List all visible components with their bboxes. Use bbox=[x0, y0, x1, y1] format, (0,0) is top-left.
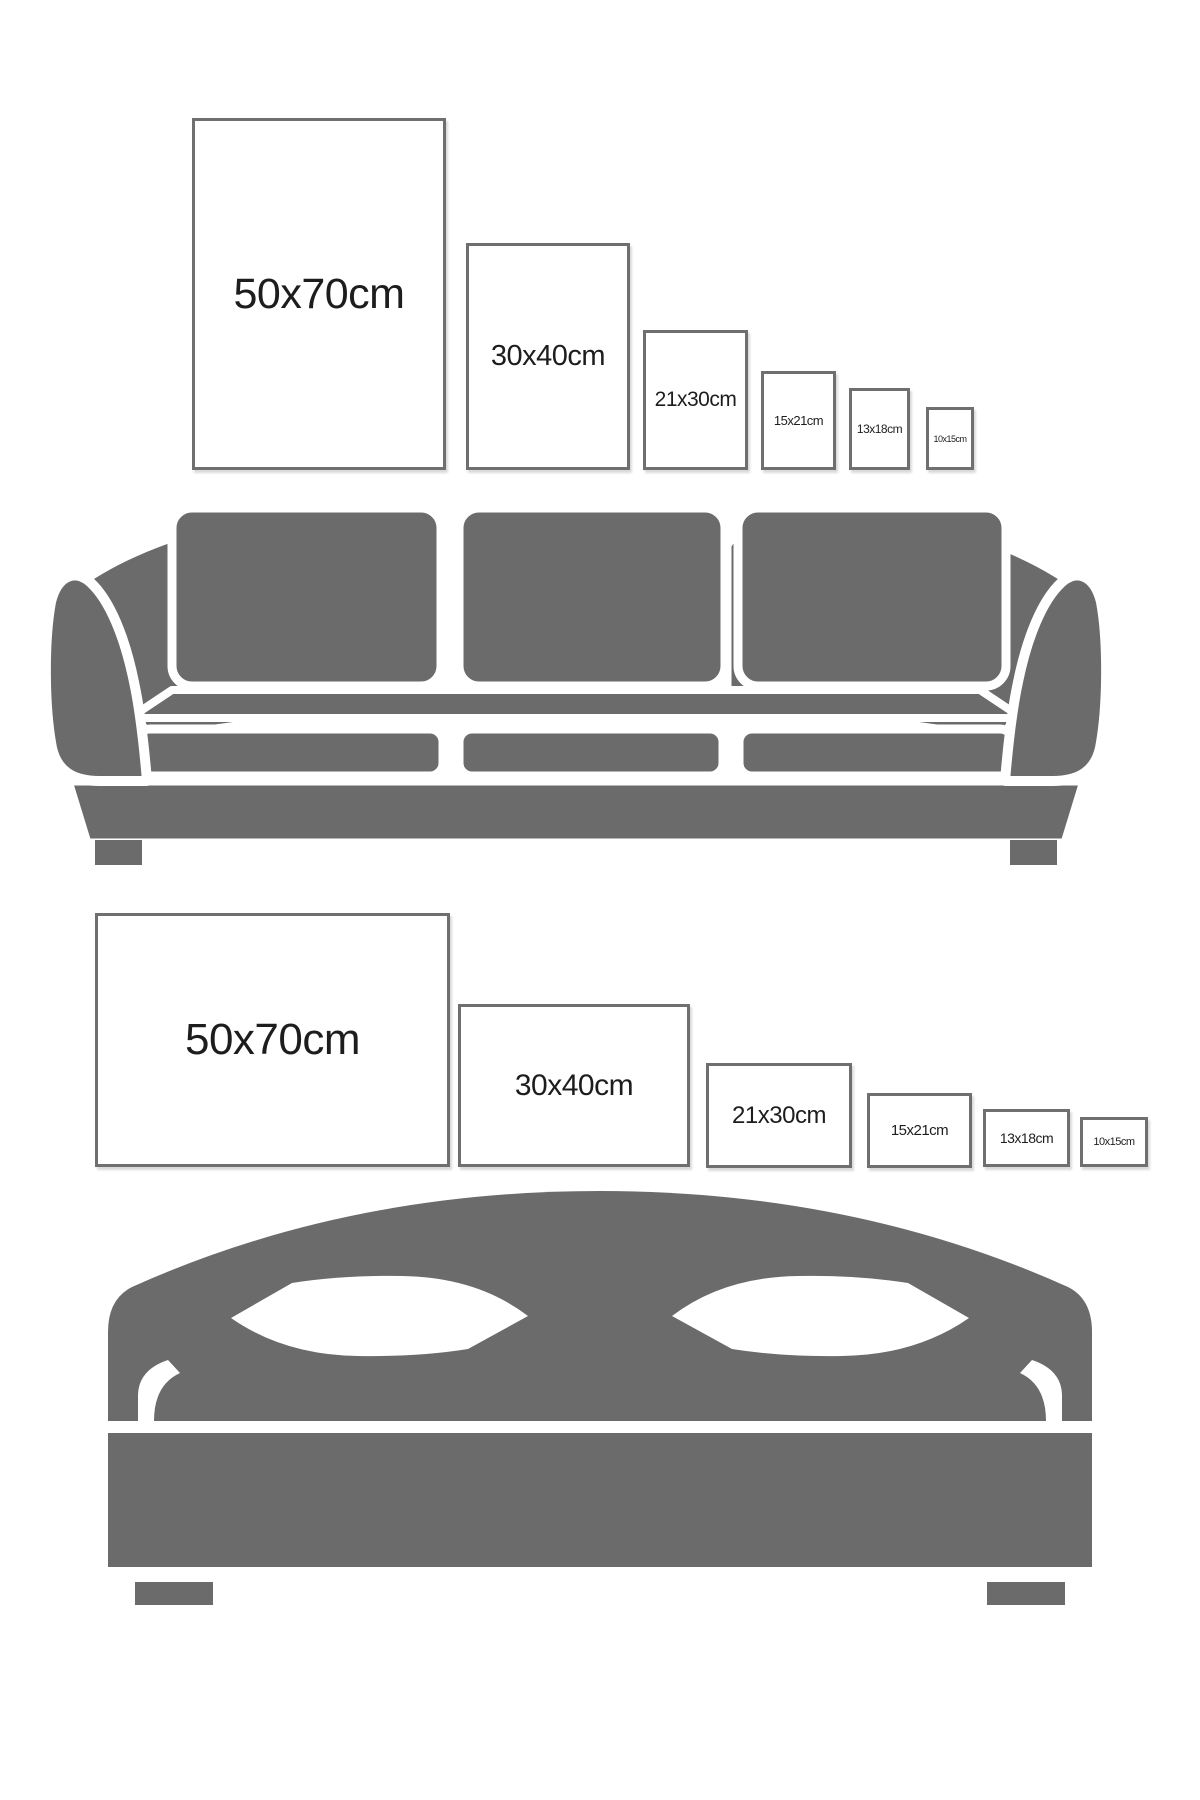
size-frame-bed-10x15cm: 10x15cm bbox=[1080, 1117, 1148, 1167]
size-frame-label: 13x18cm bbox=[1000, 1130, 1053, 1146]
sofa-seat-cushion bbox=[137, 729, 443, 776]
bed-leg-left bbox=[135, 1582, 213, 1605]
sofa-seat-cushion bbox=[739, 729, 1013, 776]
sofa-base bbox=[68, 781, 1084, 843]
bed-icon bbox=[100, 1180, 1100, 1610]
size-frame-sofa-50x70cm: 50x70cm bbox=[192, 118, 446, 470]
size-frame-label: 30x40cm bbox=[491, 340, 605, 373]
size-frame-bed-30x40cm: 30x40cm bbox=[458, 1004, 690, 1167]
diagram-stage: 50x70cm30x40cm21x30cm15x21cm13x18cm10x15… bbox=[0, 0, 1200, 1800]
size-frame-label: 21x30cm bbox=[655, 388, 737, 412]
size-frame-label: 15x21cm bbox=[891, 1122, 948, 1139]
size-frame-label: 30x40cm bbox=[515, 1069, 633, 1103]
sofa-back-cushion bbox=[459, 508, 725, 686]
size-frame-label: 10x15cm bbox=[1093, 1136, 1134, 1148]
size-frame-sofa-21x30cm: 21x30cm bbox=[643, 330, 748, 470]
size-frame-label: 15x21cm bbox=[774, 413, 823, 428]
size-frame-label: 21x30cm bbox=[732, 1102, 826, 1130]
sofa-seat-deck bbox=[130, 690, 1022, 718]
poster-size-guide-page: { "colors": { "background": "#ffffff", "… bbox=[0, 0, 1200, 1800]
bed-leg-right bbox=[987, 1582, 1065, 1605]
sofa-seat-cushion bbox=[459, 729, 723, 776]
size-frame-label: 50x70cm bbox=[185, 1015, 360, 1065]
size-frame-label: 10x15cm bbox=[933, 434, 966, 444]
sofa-icon bbox=[40, 455, 1120, 870]
sofa-leg-right bbox=[1010, 840, 1057, 865]
size-frame-bed-13x18cm: 13x18cm bbox=[983, 1109, 1070, 1167]
sofa-back-cushion bbox=[172, 508, 441, 686]
size-frame-label: 50x70cm bbox=[234, 270, 405, 319]
size-frame-label: 13x18cm bbox=[857, 422, 902, 436]
size-frame-bed-21x30cm: 21x30cm bbox=[706, 1063, 852, 1168]
sofa-leg-left bbox=[95, 840, 142, 865]
size-frame-sofa-30x40cm: 30x40cm bbox=[466, 243, 630, 470]
bed-base bbox=[108, 1433, 1092, 1567]
size-frame-bed-50x70cm: 50x70cm bbox=[95, 913, 450, 1167]
size-frame-bed-15x21cm: 15x21cm bbox=[867, 1093, 972, 1168]
sofa-back-cushion bbox=[738, 508, 1006, 686]
